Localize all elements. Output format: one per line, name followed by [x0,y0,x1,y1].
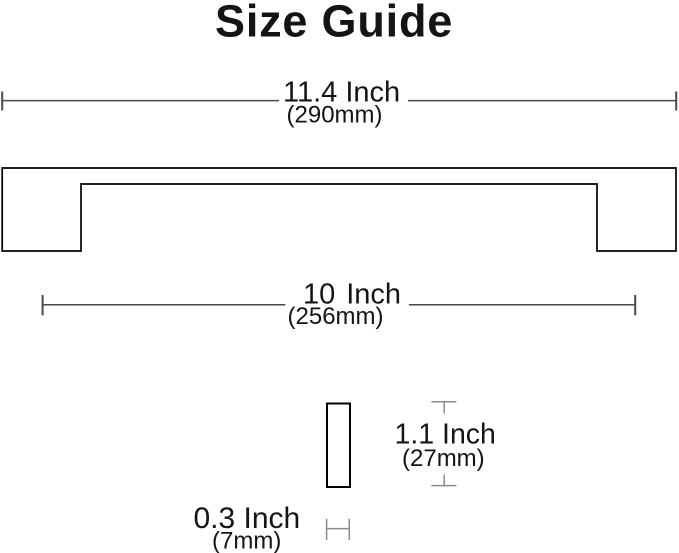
svg-text:(256mm): (256mm) [288,303,384,330]
svg-text:(27mm): (27mm) [402,445,485,472]
svg-text:(290mm): (290mm) [287,102,383,129]
svg-text:Size Guide: Size Guide [215,0,453,46]
svg-text:(7mm): (7mm) [212,528,281,553]
